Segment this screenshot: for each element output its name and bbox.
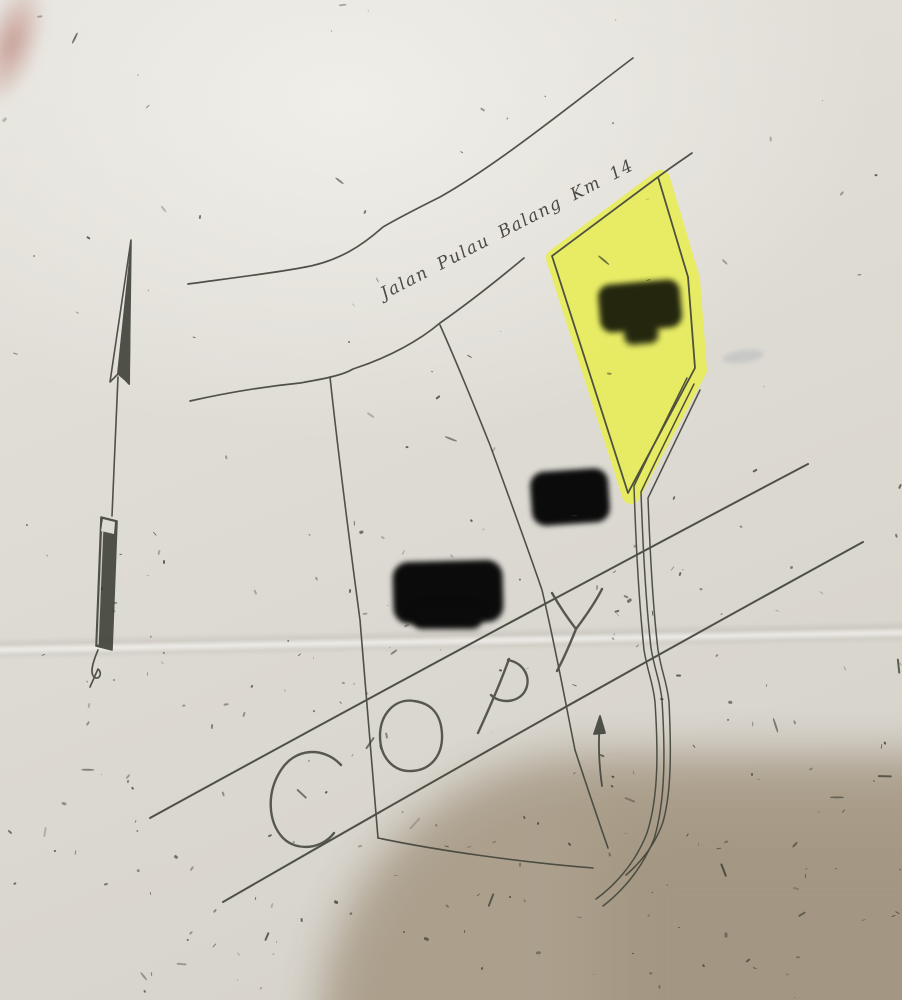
diagonal-road [150, 464, 863, 902]
copy-letter-o [380, 701, 442, 771]
copy-letter-p [478, 659, 528, 733]
sketch-map-photo: COPY Jalan Pulau Balang Km 14 [0, 0, 902, 1000]
map-linework-svg: COPY [0, 0, 902, 1000]
boundary-line-bottom [378, 838, 593, 868]
copy-letter-c [271, 752, 341, 847]
north-arrow [90, 240, 131, 687]
north-arrow-shaft [112, 377, 118, 516]
diagonal-road-upper [150, 464, 808, 818]
linework: COPY [90, 58, 863, 906]
redaction-mark-parcel-tab [623, 319, 659, 346]
road-lower-edge [190, 258, 524, 401]
north-arrow-head-fill [117, 240, 131, 385]
redaction-mark-lower-tab [412, 603, 482, 629]
direction-arrow-head [594, 716, 605, 734]
copy-letter-y [552, 589, 602, 671]
redaction-mark-middle [529, 467, 611, 526]
road-lower-edge-right [658, 153, 692, 177]
north-arrow-squiggle [90, 650, 100, 687]
boundary-line-west [330, 377, 378, 838]
direction-arrow [594, 716, 605, 786]
